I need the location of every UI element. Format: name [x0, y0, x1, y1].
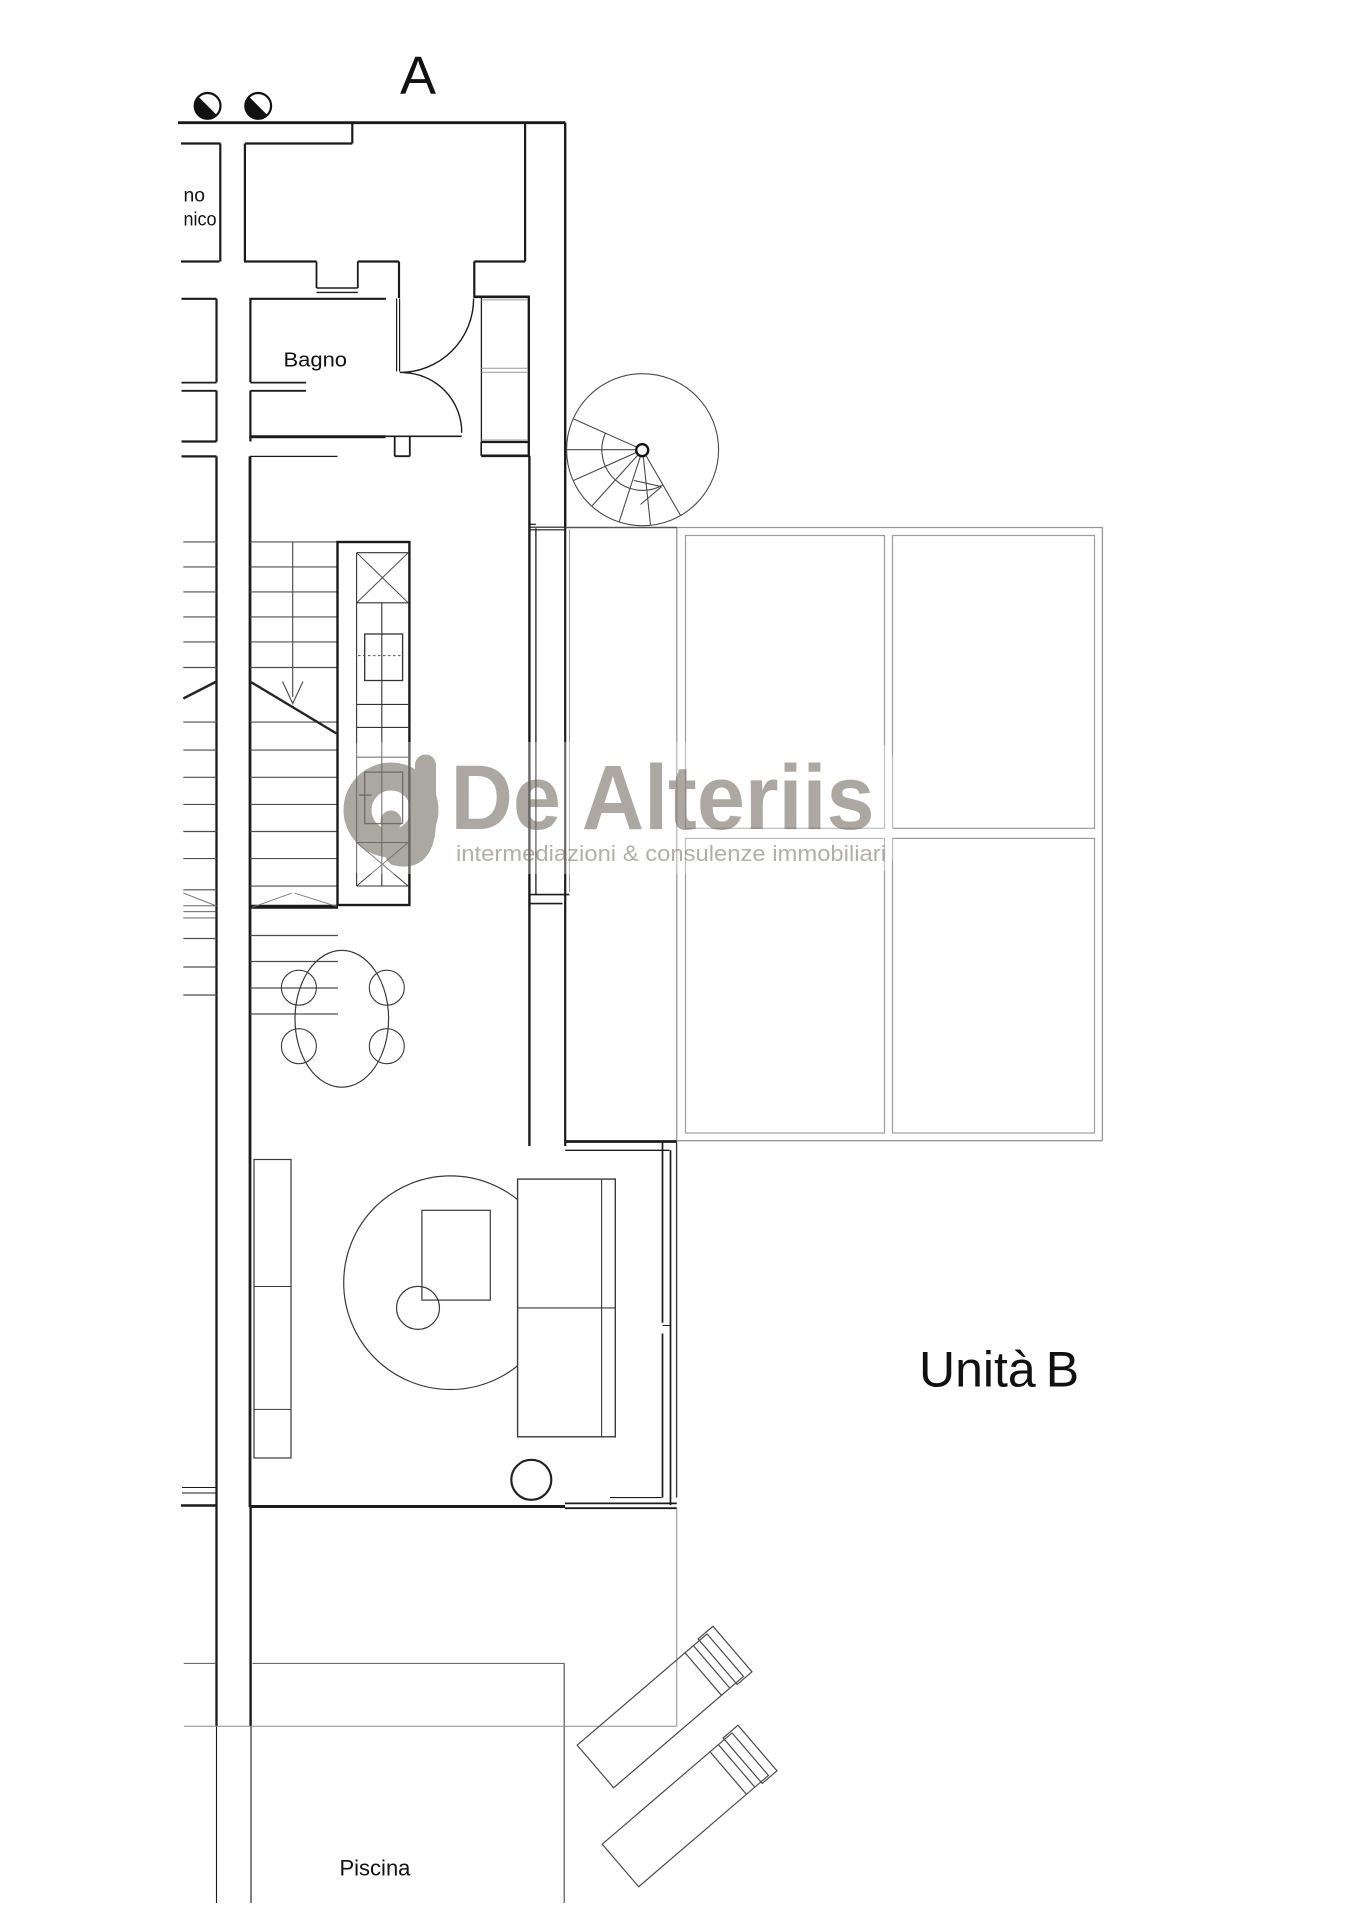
svg-text:Bagno: Bagno [284, 350, 348, 372]
svg-text:A: A [400, 46, 436, 106]
svg-text:intermediazioni & consulenze i: intermediazioni & consulenze immobiliari [456, 841, 886, 866]
svg-text:nico: nico [184, 210, 217, 231]
svg-text:Unità B: Unità B [919, 1342, 1079, 1398]
svg-text:De Alteriis: De Alteriis [451, 747, 875, 849]
svg-text:Piscina: Piscina [340, 1856, 412, 1881]
svg-text:no: no [184, 186, 206, 207]
